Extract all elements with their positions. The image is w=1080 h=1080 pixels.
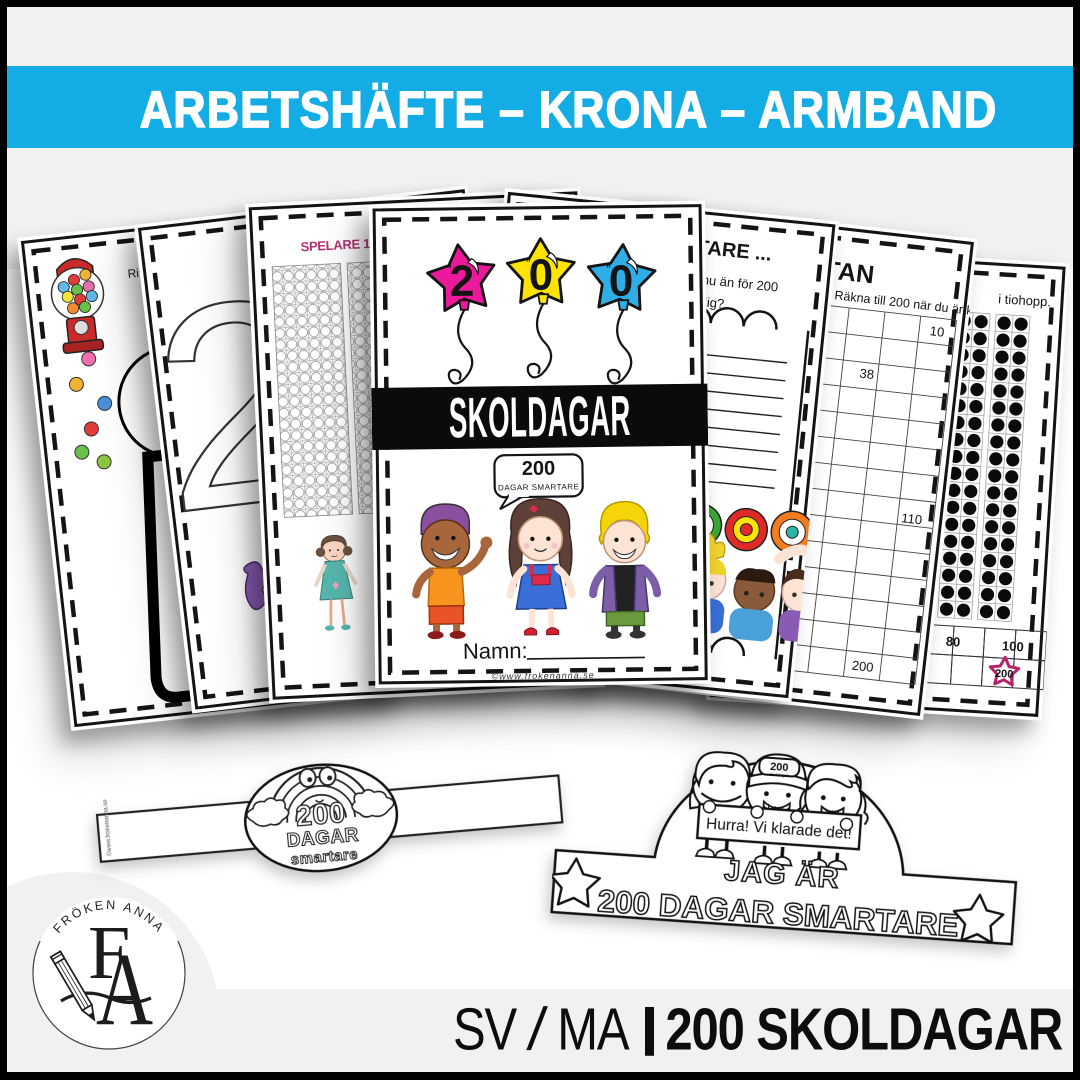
svg-text:0: 0 <box>528 251 553 300</box>
svg-text:100: 100 <box>1001 638 1024 654</box>
svg-text:2: 2 <box>449 257 474 306</box>
svg-text:110: 110 <box>901 510 923 527</box>
svg-text:10: 10 <box>929 323 945 340</box>
svg-text:©www.frokenanna.se: ©www.frokenanna.se <box>492 670 595 681</box>
svg-text:38: 38 <box>859 366 875 383</box>
svg-text:Namn:: Namn: <box>463 638 528 664</box>
svg-text:200: 200 <box>522 458 556 480</box>
svg-text:80: 80 <box>945 633 960 649</box>
svg-text:DAGAR SMARTARE: DAGAR SMARTARE <box>498 482 580 492</box>
svg-text:0: 0 <box>608 257 633 306</box>
svg-text:SKOLDAGAR: SKOLDAGAR <box>448 385 631 450</box>
svg-text:SPELARE 1: SPELARE 1 <box>300 235 370 253</box>
svg-text:nu än för 200: nu än för 200 <box>701 272 779 295</box>
svg-text:200: 200 <box>851 658 874 675</box>
svg-text:A: A <box>96 932 153 1047</box>
svg-text:i tiohopp.: i tiohopp. <box>997 291 1051 309</box>
svg-text:200: 200 <box>994 667 1013 680</box>
